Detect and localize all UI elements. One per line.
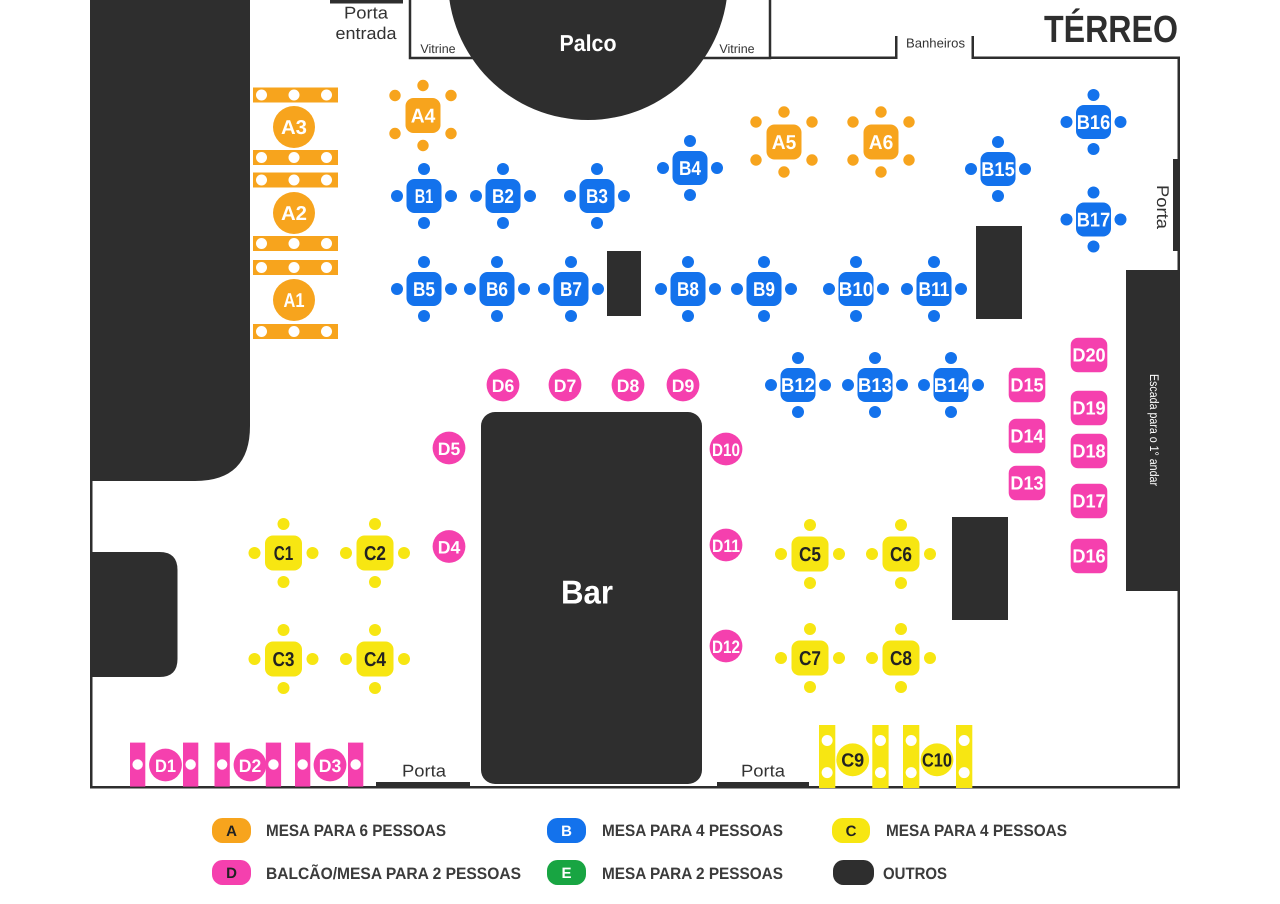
- svg-text:C4: C4: [364, 649, 387, 671]
- svg-text:entrada: entrada: [336, 24, 398, 43]
- svg-text:D10: D10: [712, 440, 740, 460]
- svg-text:C10: C10: [922, 750, 952, 771]
- svg-text:B4: B4: [679, 158, 702, 180]
- svg-text:C8: C8: [890, 648, 912, 670]
- svg-text:Banheiros: Banheiros: [906, 36, 965, 51]
- svg-text:D2: D2: [239, 756, 262, 776]
- svg-text:Porta: Porta: [1153, 185, 1172, 230]
- svg-text:D8: D8: [617, 376, 640, 396]
- svg-text:A3: A3: [281, 117, 307, 139]
- svg-text:TÉRREO: TÉRREO: [1044, 8, 1178, 51]
- svg-text:D5: D5: [438, 439, 461, 459]
- svg-text:Porta: Porta: [402, 762, 447, 781]
- svg-text:C7: C7: [799, 648, 821, 670]
- svg-text:Vitrine: Vitrine: [420, 42, 455, 56]
- svg-text:C1: C1: [274, 543, 294, 565]
- svg-text:D6: D6: [492, 376, 515, 396]
- svg-text:B3: B3: [586, 186, 608, 208]
- svg-text:B12: B12: [781, 375, 815, 397]
- svg-text:B2: B2: [492, 186, 514, 208]
- svg-text:MESA PARA 4 PESSOAS: MESA PARA 4 PESSOAS: [886, 822, 1067, 840]
- svg-text:D3: D3: [319, 756, 342, 776]
- svg-text:D19: D19: [1072, 399, 1105, 420]
- svg-text:B11: B11: [919, 279, 950, 301]
- svg-text:E: E: [561, 865, 571, 882]
- svg-text:BALCÃO/MESA PARA 2 PESSOAS: BALCÃO/MESA PARA 2 PESSOAS: [266, 864, 521, 883]
- svg-text:B1: B1: [415, 186, 434, 208]
- svg-text:D: D: [226, 865, 237, 882]
- svg-text:D14: D14: [1010, 427, 1044, 448]
- svg-text:B10: B10: [839, 279, 874, 301]
- svg-text:D20: D20: [1072, 346, 1105, 367]
- svg-text:D7: D7: [554, 376, 577, 396]
- svg-text:D13: D13: [1010, 474, 1043, 495]
- svg-text:B14: B14: [934, 375, 969, 397]
- svg-text:A4: A4: [411, 106, 436, 128]
- svg-text:D16: D16: [1072, 547, 1105, 568]
- svg-text:B17: B17: [1077, 210, 1111, 232]
- svg-text:OUTROS: OUTROS: [883, 865, 947, 883]
- svg-text:Porta: Porta: [741, 762, 786, 781]
- svg-text:C3: C3: [273, 649, 295, 671]
- svg-text:B9: B9: [753, 279, 775, 301]
- svg-text:B8: B8: [677, 279, 699, 301]
- svg-text:D11: D11: [712, 536, 740, 556]
- svg-text:Vitrine: Vitrine: [719, 42, 754, 56]
- svg-text:Escada para o 1° andar: Escada para o 1° andar: [1147, 374, 1161, 486]
- svg-text:A1: A1: [284, 290, 305, 312]
- svg-text:C5: C5: [799, 544, 821, 566]
- svg-text:A5: A5: [772, 132, 797, 154]
- svg-text:Bar: Bar: [561, 574, 613, 611]
- svg-text:Palco: Palco: [560, 30, 617, 56]
- svg-text:A6: A6: [869, 132, 894, 154]
- svg-text:B15: B15: [981, 159, 1015, 181]
- svg-text:D1: D1: [155, 756, 176, 776]
- svg-text:D12: D12: [712, 637, 740, 657]
- svg-text:MESA PARA 6 PESSOAS: MESA PARA 6 PESSOAS: [266, 822, 446, 840]
- svg-text:B13: B13: [858, 375, 892, 397]
- svg-text:B7: B7: [560, 279, 582, 301]
- svg-text:C2: C2: [364, 543, 386, 565]
- svg-text:MESA PARA 4 PESSOAS: MESA PARA 4 PESSOAS: [602, 822, 783, 840]
- svg-text:A2: A2: [281, 203, 307, 225]
- svg-text:D9: D9: [672, 376, 695, 396]
- svg-text:B: B: [561, 823, 572, 840]
- svg-text:B5: B5: [413, 279, 435, 301]
- svg-text:D18: D18: [1072, 442, 1105, 463]
- svg-text:D17: D17: [1072, 492, 1105, 513]
- svg-text:D15: D15: [1010, 376, 1044, 397]
- svg-text:D4: D4: [438, 538, 461, 558]
- svg-text:MESA PARA 2 PESSOAS: MESA PARA 2 PESSOAS: [602, 865, 783, 883]
- svg-text:Porta: Porta: [344, 4, 389, 23]
- svg-text:B16: B16: [1077, 112, 1111, 134]
- svg-text:B6: B6: [486, 279, 508, 301]
- svg-text:A: A: [226, 823, 237, 840]
- svg-text:C9: C9: [841, 750, 864, 771]
- svg-text:C6: C6: [890, 544, 912, 566]
- svg-text:C: C: [846, 823, 857, 840]
